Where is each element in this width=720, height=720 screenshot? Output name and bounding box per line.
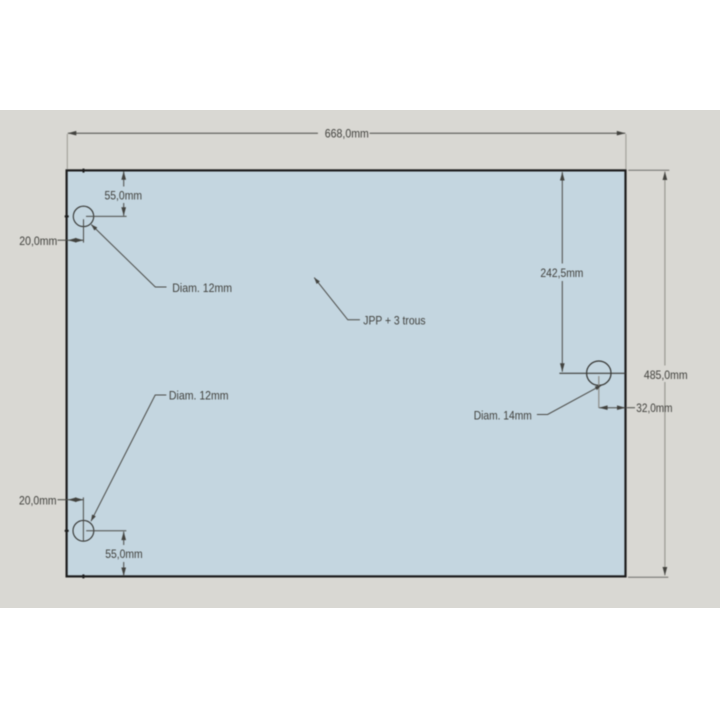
svg-text:668,0mm: 668,0mm bbox=[325, 127, 369, 141]
svg-text:55,0mm: 55,0mm bbox=[105, 189, 143, 203]
svg-text:485,0mm: 485,0mm bbox=[644, 368, 688, 382]
svg-text:Diam. 14mm: Diam. 14mm bbox=[474, 408, 532, 422]
svg-text:Diam. 12mm: Diam. 12mm bbox=[172, 281, 232, 295]
svg-text:32,0mm: 32,0mm bbox=[636, 401, 672, 415]
svg-text:20,0mm: 20,0mm bbox=[19, 234, 57, 248]
svg-text:242,5mm: 242,5mm bbox=[540, 266, 583, 280]
svg-text:55,0mm: 55,0mm bbox=[105, 547, 142, 561]
svg-text:Diam. 12mm: Diam. 12mm bbox=[169, 389, 229, 403]
svg-text:JPP + 3 trous: JPP + 3 trous bbox=[363, 313, 425, 327]
svg-text:20,0mm: 20,0mm bbox=[19, 493, 57, 507]
